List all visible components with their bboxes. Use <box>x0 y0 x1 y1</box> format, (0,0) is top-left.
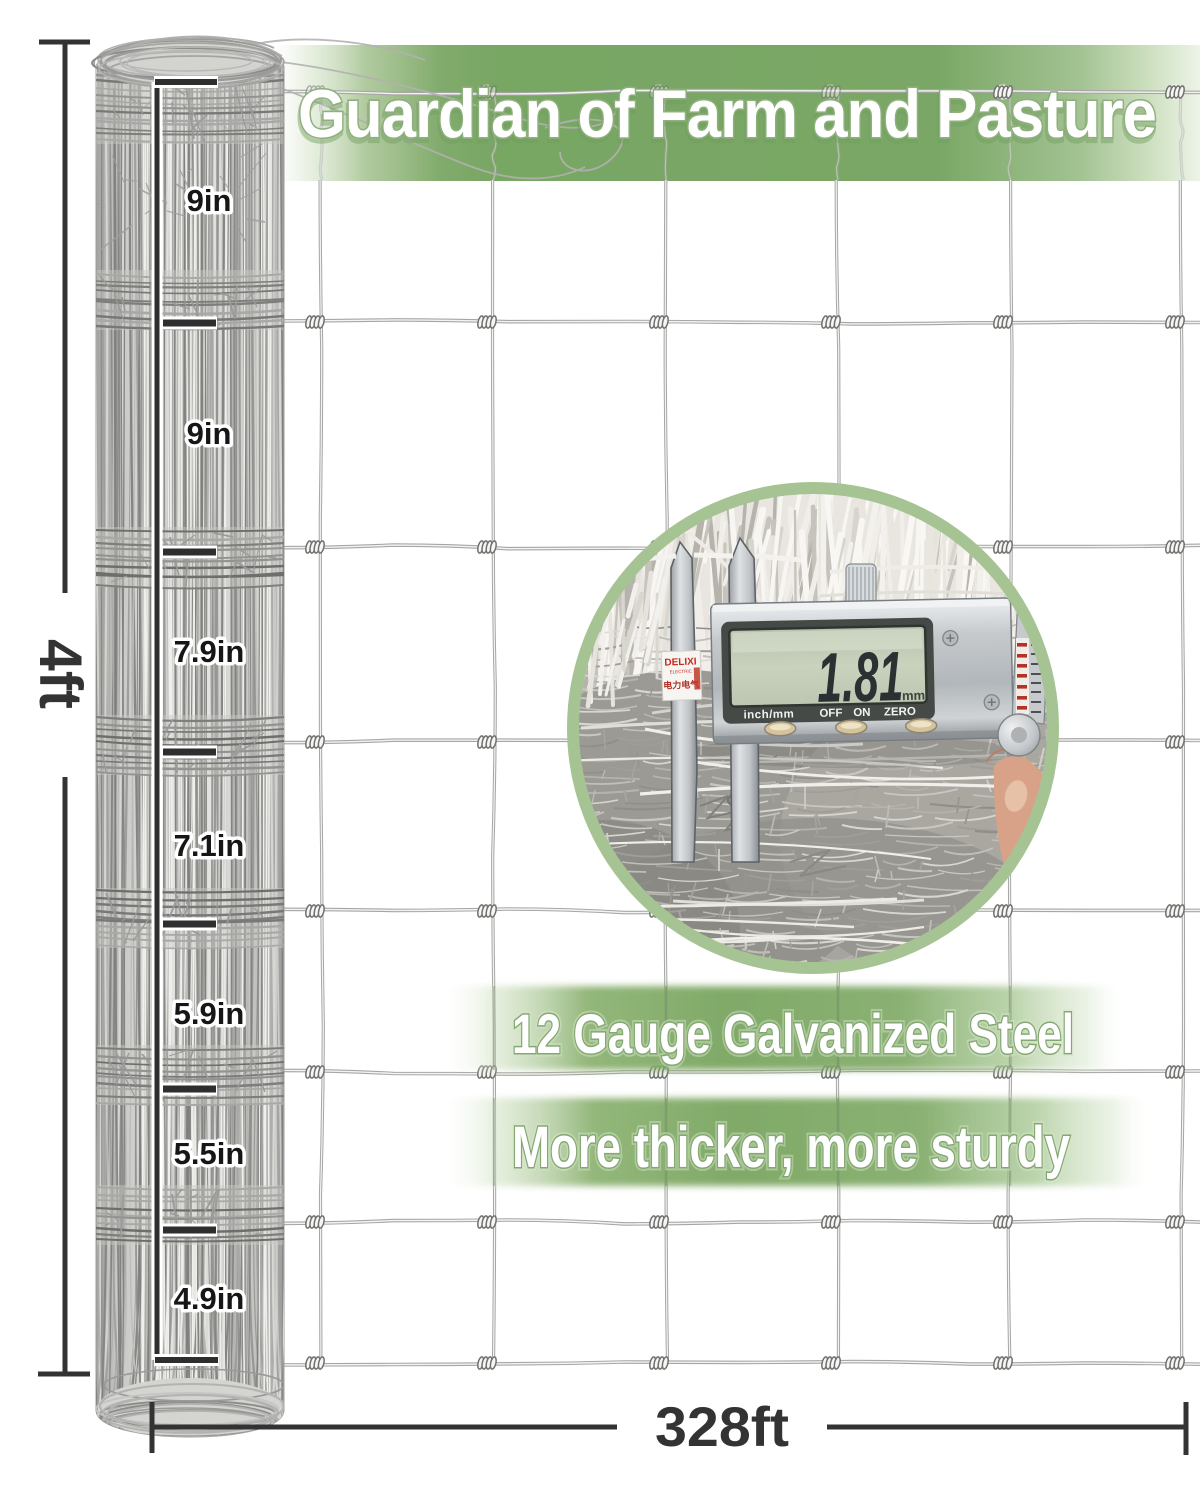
svg-text:More thicker, more sturdy: More thicker, more sturdy <box>512 1115 1070 1180</box>
svg-text:1.81: 1.81 <box>816 637 904 717</box>
svg-text:5.9in: 5.9in <box>174 996 245 1031</box>
svg-text:ELECTRIC: ELECTRIC <box>670 669 693 675</box>
svg-text:328ft: 328ft <box>655 1395 789 1458</box>
svg-text:7.9in: 7.9in <box>174 634 245 669</box>
svg-text:4.9in: 4.9in <box>174 1281 245 1316</box>
svg-text:4ft: 4ft <box>27 639 94 709</box>
svg-text:9in: 9in <box>187 183 232 218</box>
svg-text:7.1in: 7.1in <box>174 828 245 863</box>
svg-text:9in: 9in <box>187 416 232 451</box>
svg-text:DELIXI: DELIXI <box>664 656 697 668</box>
svg-text:mm: mm <box>902 688 925 703</box>
svg-text:Guardian of Farm and Pasture: Guardian of Farm and Pasture <box>298 76 1156 152</box>
svg-text:inch/mm: inch/mm <box>743 708 794 721</box>
svg-text:电力电气: 电力电气 <box>663 678 699 690</box>
svg-text:12 Gauge Galvanized Steel: 12 Gauge Galvanized Steel <box>512 1002 1074 1065</box>
svg-text:ON: ON <box>853 707 870 719</box>
svg-text:ZERO: ZERO <box>884 706 916 719</box>
svg-text:OFF: OFF <box>819 707 842 719</box>
svg-text:5.5in: 5.5in <box>174 1136 245 1171</box>
